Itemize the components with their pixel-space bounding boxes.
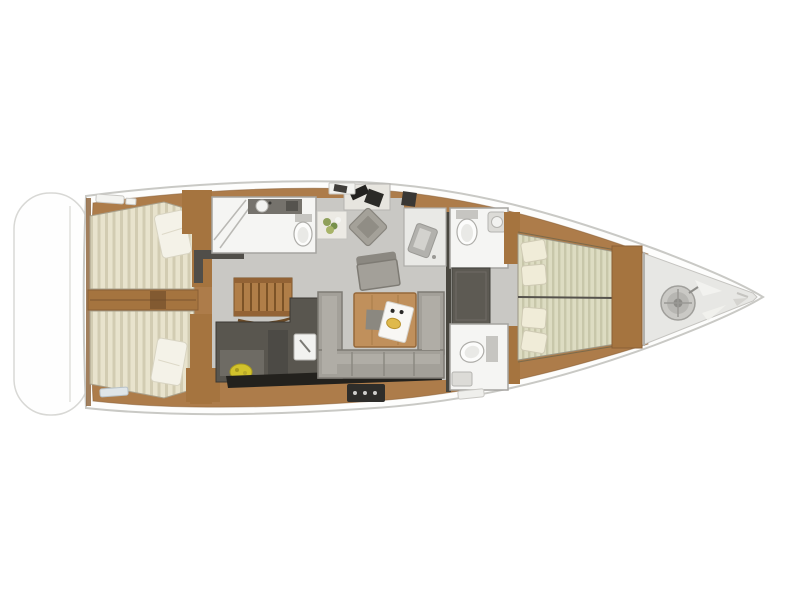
galley-fridge (268, 330, 288, 378)
fwd-pillow-2 (521, 264, 547, 286)
fwd-toilet-top-tank (456, 210, 478, 219)
aft-head-sink (256, 200, 268, 212)
deck-vent-aft-top (126, 198, 136, 205)
fwd-bed-center-seam (518, 297, 616, 298)
aft-toilet-tank (295, 214, 312, 222)
aft-toilet-seat (298, 227, 309, 243)
shower-drain (432, 255, 436, 259)
stairs-rail-top (234, 278, 292, 283)
sofa-bottom-cushion (324, 354, 440, 364)
stove-knob-3 (373, 391, 377, 395)
yacht-floorplan-canvas (0, 0, 800, 600)
fwd-pillow-1 (520, 239, 547, 263)
fwd-cabin-door (452, 268, 490, 324)
stove-knob-2 (363, 391, 367, 395)
companionway-wall-v (194, 259, 203, 283)
aft-head-faucet (269, 202, 272, 205)
companionway-stairs (234, 278, 292, 323)
forward-cabin (518, 232, 642, 362)
deck-hatch-aft-bottom (100, 387, 128, 397)
armchair-seat (357, 259, 400, 290)
fwd-pillow-4 (520, 330, 547, 354)
aft-starboard-wardrobe (186, 368, 220, 402)
electrical-panel (401, 191, 417, 207)
floorplan-svg (0, 0, 800, 600)
swim-platform (14, 193, 88, 415)
aft-head-bathroom (212, 197, 316, 253)
stove-knob-1 (353, 391, 357, 395)
saloon-armchair (356, 251, 400, 290)
fwd-sink-bottom (452, 372, 472, 386)
fwd-toilet-bottom-tank (486, 336, 498, 362)
sofa-right-cushion (422, 296, 440, 350)
fruit-1 (235, 368, 239, 372)
fruit-2 (243, 371, 247, 375)
aft-head-locker (286, 201, 298, 211)
fwd-sink-top (492, 217, 503, 228)
fwd-bed-foot-panel (612, 246, 642, 348)
fwd-toilet-top-seat (461, 224, 473, 242)
fwd-pillow-3 (521, 307, 547, 329)
deck-hatch-aft-top (96, 194, 124, 204)
divider-cabinet (150, 291, 166, 309)
stairs-rail-bottom (234, 311, 292, 316)
swim-platform-deck (14, 193, 88, 415)
